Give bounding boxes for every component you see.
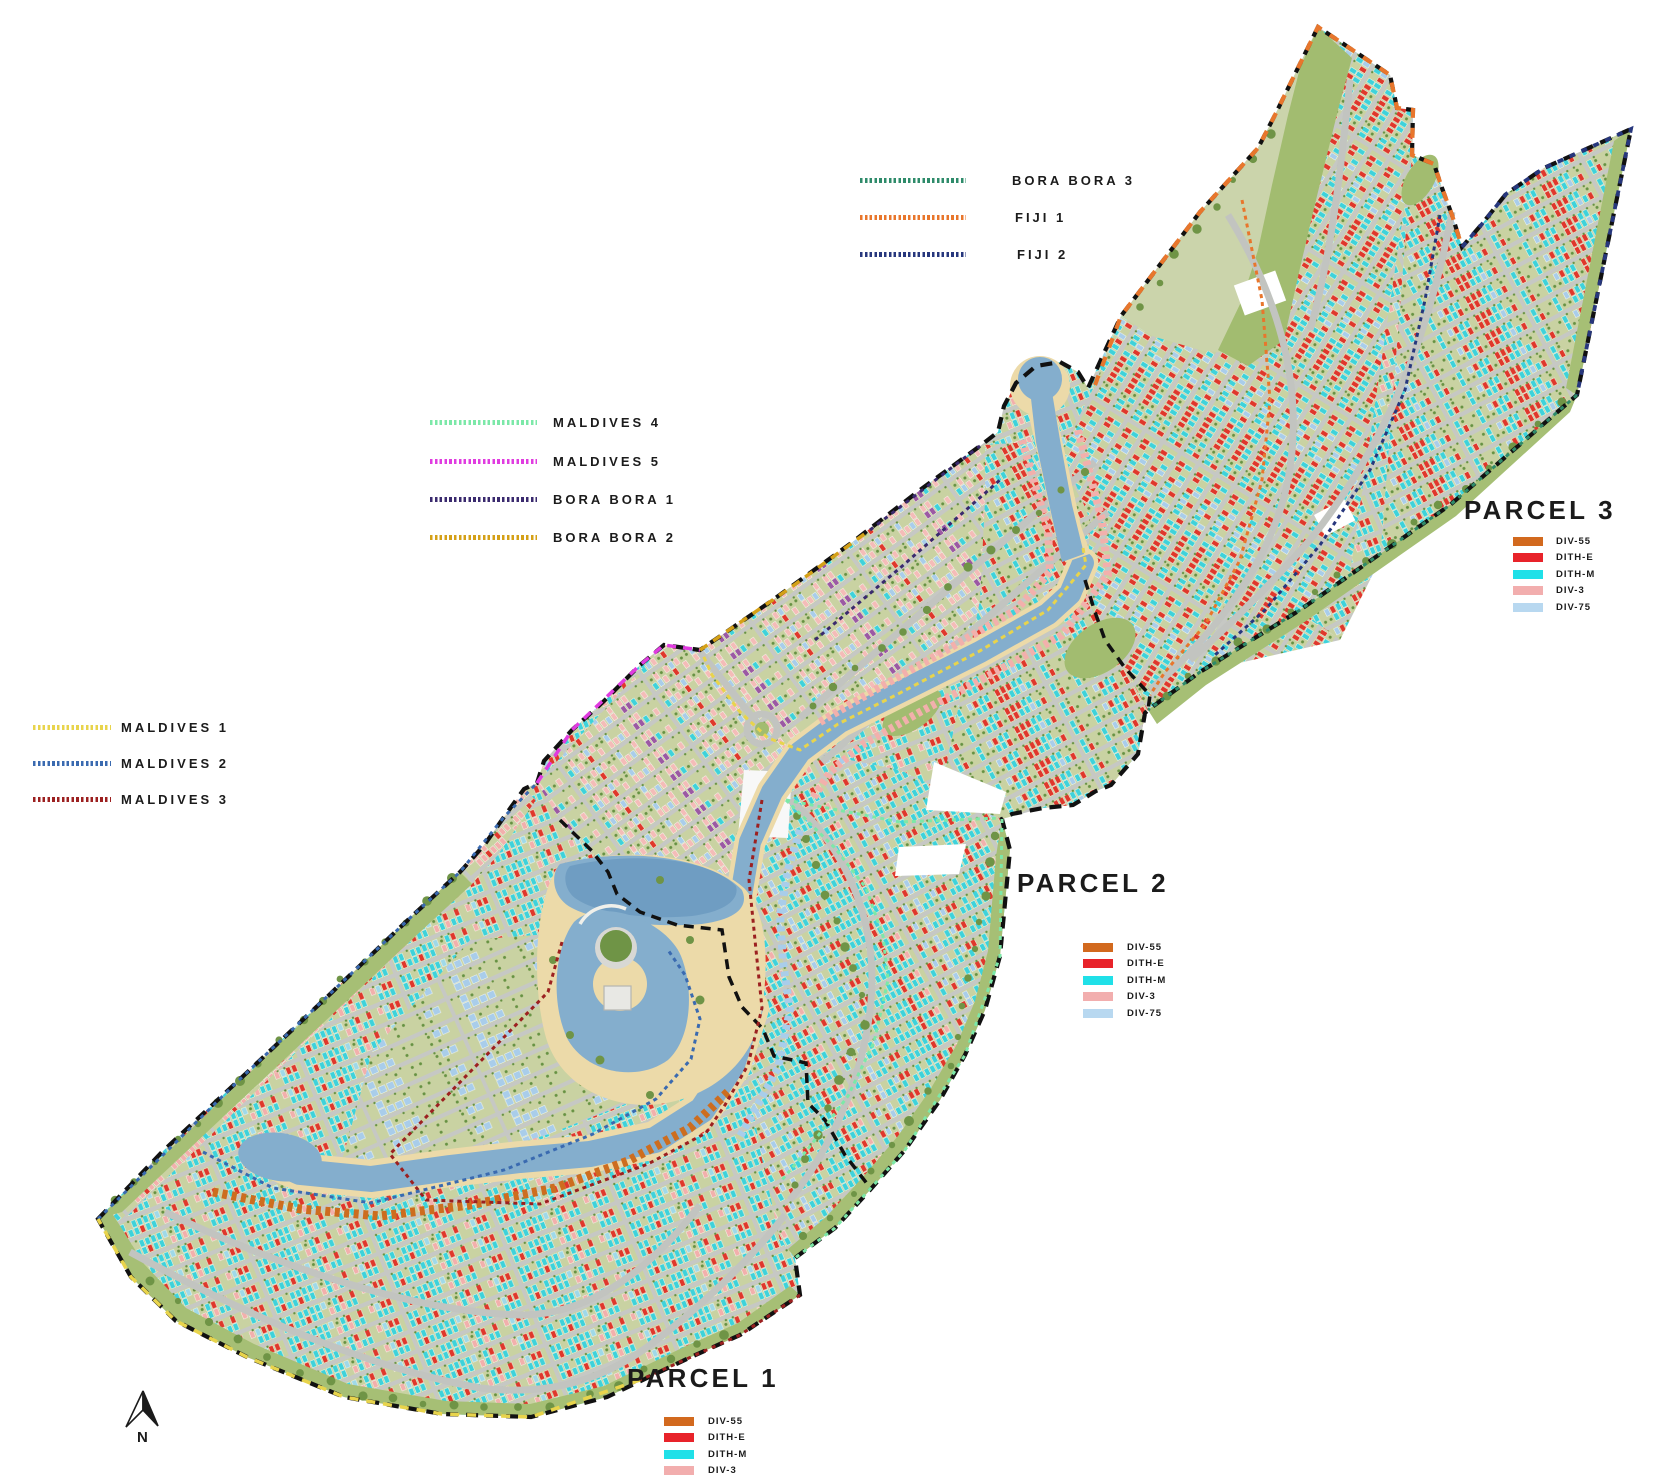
svg-text:N: N (137, 1429, 148, 1446)
